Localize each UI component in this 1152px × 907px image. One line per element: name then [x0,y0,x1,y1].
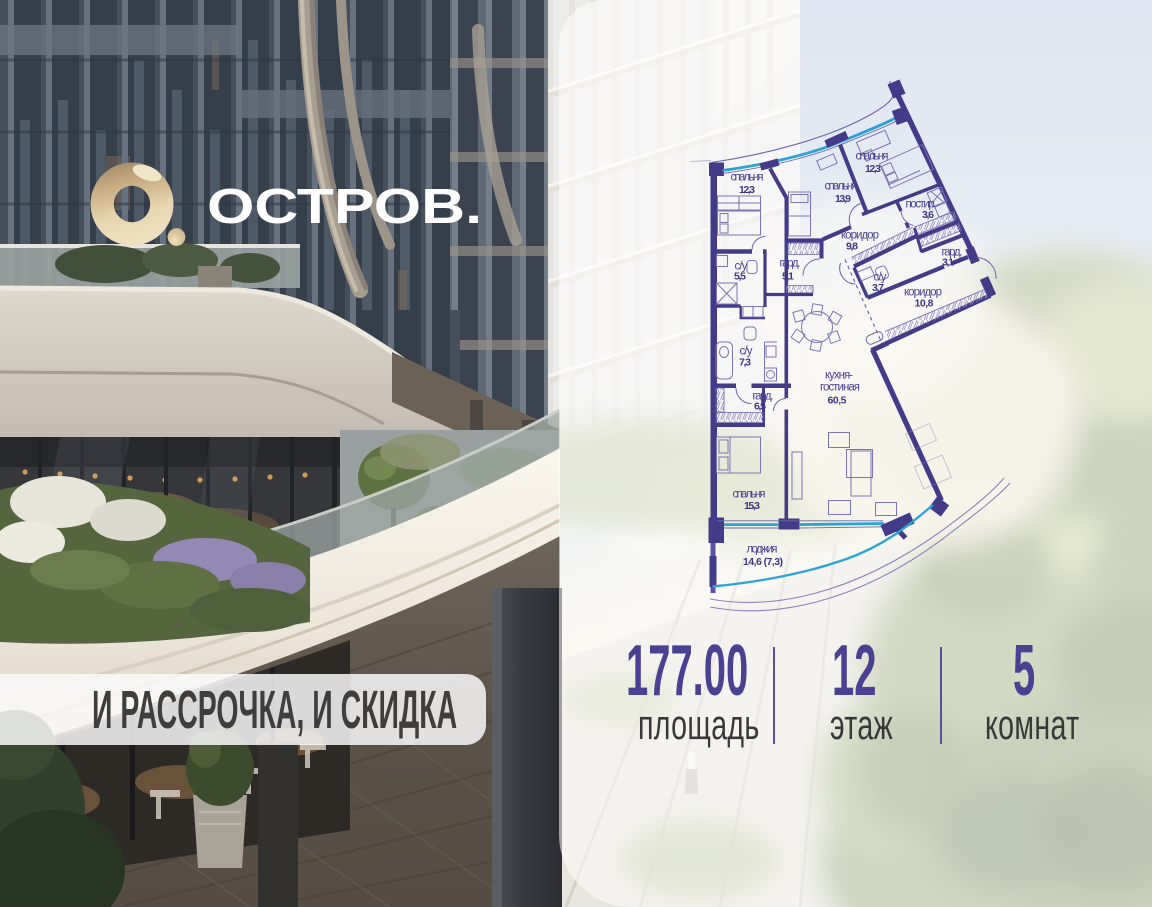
svg-text:спальня: спальня [856,151,889,163]
svg-text:3,6: 3,6 [922,209,934,221]
svg-text:спальня: спальня [731,172,764,184]
svg-text:10,8: 10,8 [915,298,934,310]
svg-text:6,5: 6,5 [754,401,766,413]
svg-text:спальня: спальня [733,489,766,501]
svg-text:кухня-: кухня- [825,370,853,382]
svg-text:12,3: 12,3 [739,184,755,196]
svg-text:9,8: 9,8 [846,241,858,253]
svg-text:3,7: 3,7 [872,282,884,294]
svg-text:5,1: 5,1 [782,271,794,283]
svg-text:13,9: 13,9 [835,193,851,205]
svg-text:гард.: гард. [780,258,801,270]
svg-text:ОСТРОВ.: ОСТРОВ. [207,180,482,234]
svg-text:5,5: 5,5 [734,271,746,283]
svg-text:60,5: 60,5 [828,395,847,407]
svg-text:3,1: 3,1 [942,257,954,269]
svg-text:12,3: 12,3 [865,163,881,175]
svg-text:7,3: 7,3 [739,357,751,369]
svg-text:14,6 (7,3): 14,6 (7,3) [743,556,783,568]
svg-text:лоджия: лоджия [747,544,778,556]
svg-text:15,3: 15,3 [744,500,760,512]
svg-text:гостиная: гостиная [820,382,860,394]
svg-text:спальня: спальня [825,181,858,193]
